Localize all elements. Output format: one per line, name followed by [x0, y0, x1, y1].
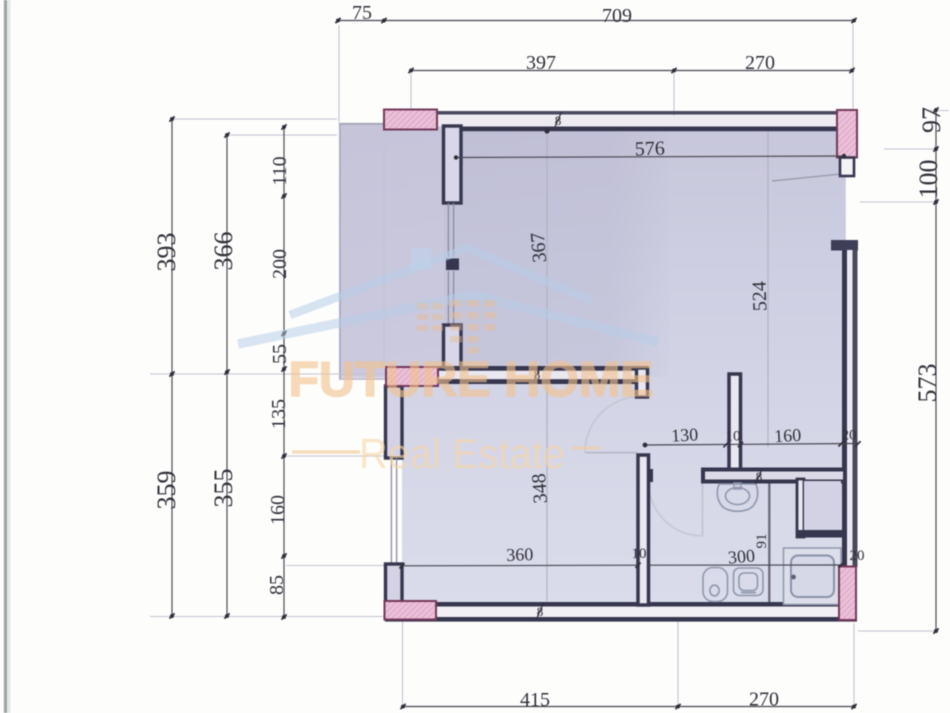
- svg-text:393: 393: [152, 233, 181, 272]
- svg-text:270: 270: [745, 52, 775, 74]
- svg-text:355: 355: [209, 469, 238, 508]
- svg-text:97: 97: [917, 107, 946, 133]
- svg-text:573: 573: [913, 364, 942, 403]
- svg-text:200: 200: [269, 249, 291, 279]
- svg-text:709: 709: [602, 5, 632, 27]
- svg-text:300: 300: [727, 545, 756, 567]
- svg-text:367: 367: [527, 232, 552, 264]
- svg-text:130: 130: [671, 424, 699, 445]
- svg-text:348: 348: [528, 473, 552, 504]
- svg-text:100: 100: [914, 160, 943, 199]
- svg-text:366: 366: [209, 232, 238, 271]
- svg-text:397: 397: [526, 52, 556, 74]
- svg-text:91: 91: [754, 534, 770, 549]
- svg-text:10: 10: [632, 546, 647, 562]
- svg-text:270: 270: [749, 689, 779, 711]
- svg-text:415: 415: [520, 689, 550, 711]
- svg-text:160: 160: [774, 425, 802, 446]
- svg-text:85: 85: [266, 575, 288, 595]
- svg-text:359: 359: [152, 471, 181, 510]
- svg-text:576: 576: [634, 137, 665, 160]
- svg-text:FUTURE HOME: FUTURE HOME: [289, 353, 654, 407]
- svg-text:Real Estate: Real Estate: [359, 430, 565, 477]
- svg-text:20: 20: [850, 548, 865, 564]
- svg-text:160: 160: [267, 495, 289, 525]
- svg-text:524: 524: [748, 281, 771, 312]
- svg-text:110: 110: [269, 156, 291, 185]
- svg-text:75: 75: [352, 2, 372, 24]
- svg-text:135: 135: [268, 399, 290, 429]
- svg-text:360: 360: [506, 544, 534, 565]
- svg-text:20: 20: [842, 428, 857, 444]
- svg-text:10: 10: [726, 429, 741, 445]
